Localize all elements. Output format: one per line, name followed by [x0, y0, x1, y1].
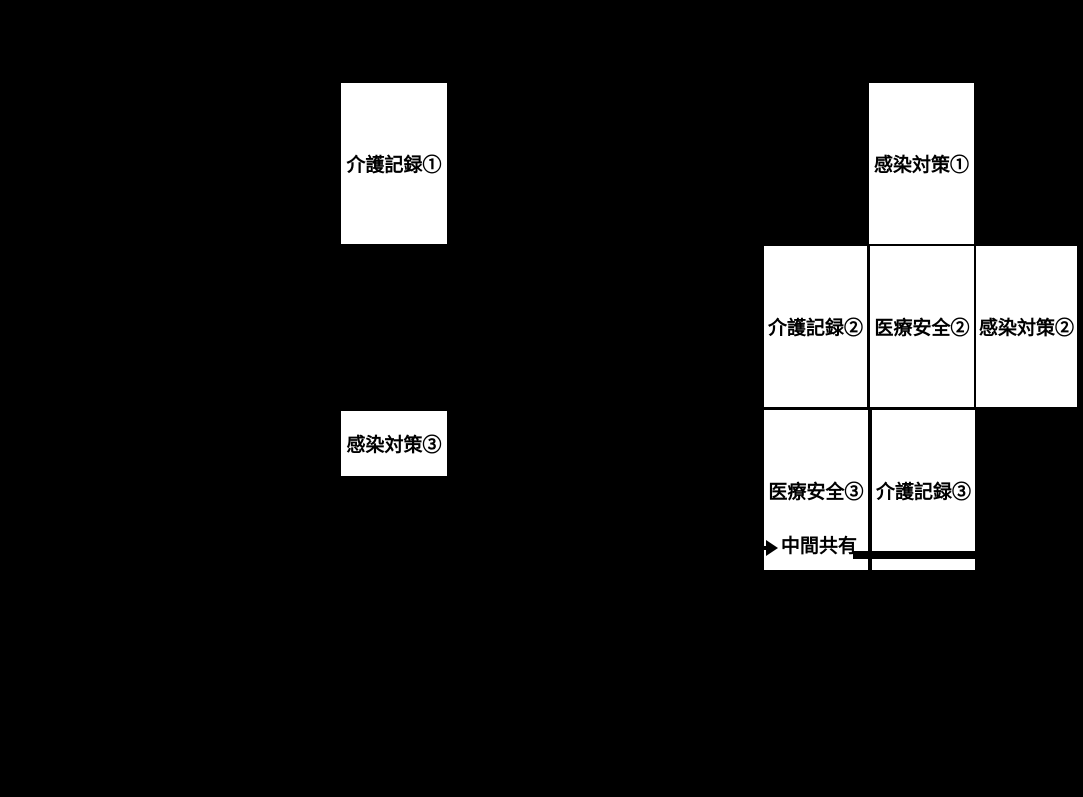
box-care-record-2-label: 介護記録② [768, 313, 863, 340]
mid-share-label: 中間共有 [781, 531, 857, 558]
box-medical-safety-2-label: 医療安全② [874, 313, 969, 340]
slide-canvas: 介護記録① 感染対策③ 感染対策① 介護記録② 医療安全② 感染対策② 医療安全… [0, 0, 1083, 797]
box-care-record-1: 介護記録① [341, 83, 447, 244]
box-infection-control-2: 感染対策② [976, 246, 1077, 407]
box-infection-control-1: 感染対策① [869, 83, 974, 244]
right-arrow-shaft [748, 546, 768, 550]
box-infection-control-3-label: 感染対策③ [346, 430, 441, 457]
box-care-record-2: 介護記録② [764, 246, 867, 407]
box-medical-safety-2: 医療安全② [870, 246, 974, 407]
right-arrow-head [766, 540, 778, 556]
emphasis-underline [853, 551, 975, 559]
box-care-record-3-label: 介護記録③ [876, 477, 971, 504]
box-medical-safety-3-label: 医療安全③ [768, 477, 863, 504]
box-infection-control-3: 感染対策③ [341, 411, 447, 476]
box-care-record-1-label: 介護記録① [346, 150, 441, 177]
box-infection-control-2-label: 感染対策② [979, 313, 1074, 340]
box-care-record-3: 介護記録③ [872, 410, 975, 570]
right-arrow-icon [748, 540, 778, 556]
box-infection-control-1-label: 感染対策① [874, 150, 969, 177]
